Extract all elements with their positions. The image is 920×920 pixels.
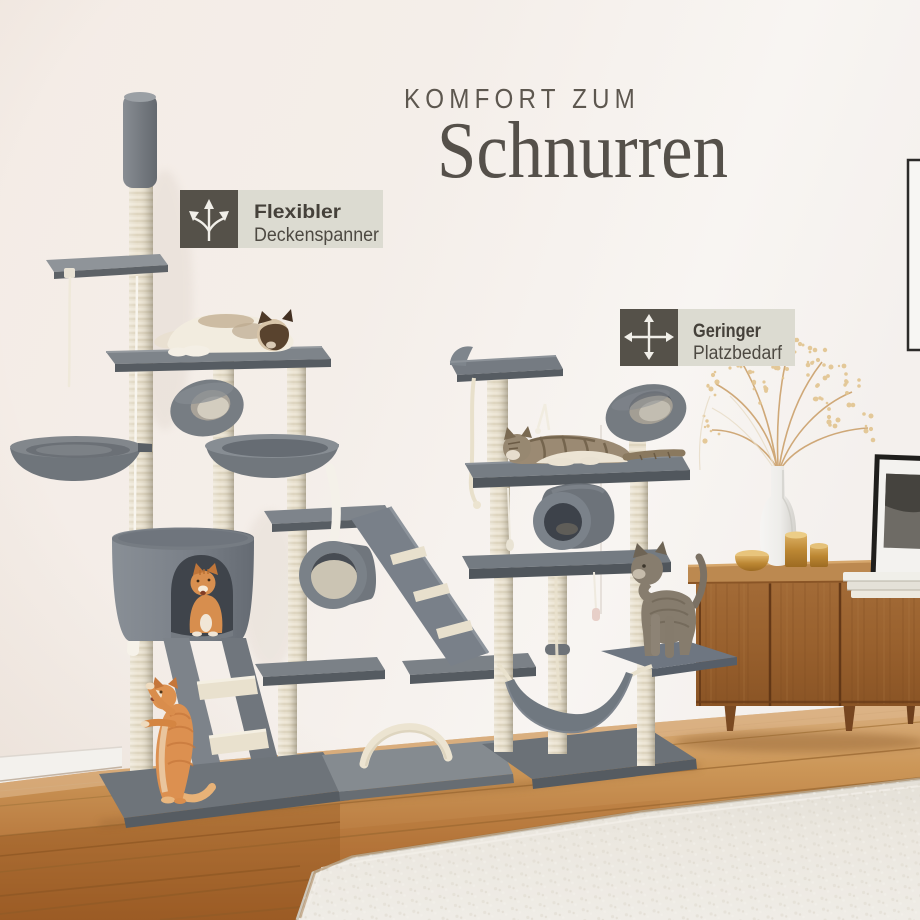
svg-text:Deckenspanner: Deckenspanner xyxy=(254,225,380,246)
svg-text:Geringer: Geringer xyxy=(693,321,762,342)
svg-text:Flexibler: Flexibler xyxy=(254,202,342,223)
svg-text:Schnurren: Schnurren xyxy=(437,107,728,195)
svg-text:Platzbedarf: Platzbedarf xyxy=(693,343,783,364)
